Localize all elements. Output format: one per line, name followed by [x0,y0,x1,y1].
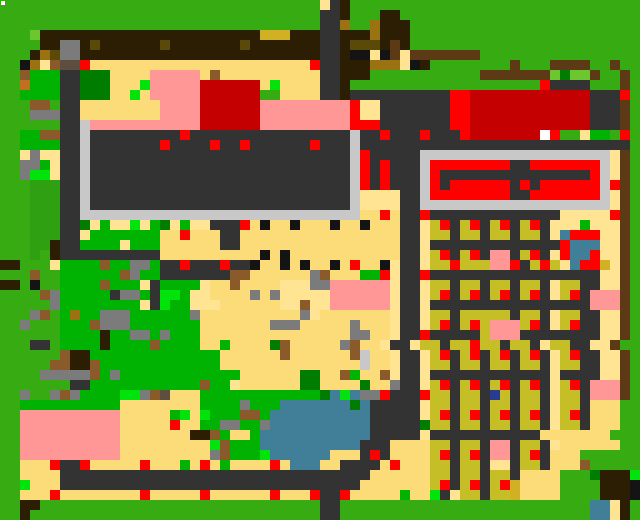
game-map [0,0,640,520]
game-map-canvas[interactable] [0,0,640,520]
